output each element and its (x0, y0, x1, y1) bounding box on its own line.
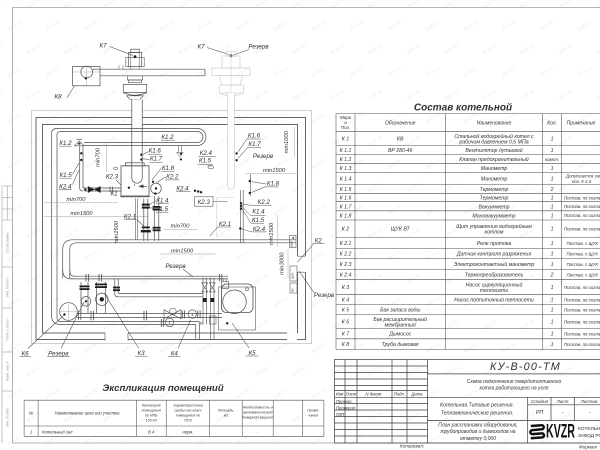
svg-text:kvzr.ru: kvzr.ru (178, 0, 194, 10)
svg-text:kvzr.ru: kvzr.ru (45, 111, 61, 124)
svg-text:min1500: min1500 (269, 222, 275, 245)
svg-text:kvzr.ru: kvzr.ru (349, 341, 365, 354)
svg-text:kvzr.ru: kvzr.ru (140, 0, 156, 10)
svg-text:kvzr.ru: kvzr.ru (273, 19, 289, 32)
svg-text:Постав. по согла: Постав. по согла (564, 195, 600, 200)
svg-text:1: 1 (551, 148, 554, 154)
svg-text:kvzr.ru: kvzr.ru (178, 42, 194, 55)
svg-text:kvzr.ru: kvzr.ru (235, 111, 251, 124)
svg-text:Клапан предохранительный: Клапан предохранительный (459, 156, 529, 163)
svg-text:kvzr.ru: kvzr.ru (558, 0, 574, 10)
svg-text:min1000: min1000 (284, 130, 290, 153)
svg-text:К7: К7 (197, 44, 205, 51)
svg-text:kvzr.ru: kvzr.ru (26, 134, 42, 147)
svg-text:Изм: Изм (336, 392, 344, 397)
svg-text:kvzr.ru: kvzr.ru (273, 295, 289, 308)
svg-text:kvzr.ru: kvzr.ru (26, 180, 42, 193)
svg-text:kvzr.ru: kvzr.ru (64, 42, 80, 55)
svg-text:1: 1 (551, 196, 554, 202)
svg-text:К 3: К 3 (342, 285, 349, 291)
svg-text:Постав. с ЩУК: Постав. с ЩУК (567, 241, 599, 246)
svg-text:К 7: К 7 (342, 332, 350, 338)
svg-text:kvzr.ru: kvzr.ru (254, 88, 270, 101)
svg-text:по НПБ: по НПБ (145, 414, 158, 418)
svg-text:kvzr.ru: kvzr.ru (425, 157, 441, 170)
svg-text:kvzr.ru: kvzr.ru (83, 249, 99, 262)
svg-text:kvzr.ru: kvzr.ru (406, 0, 422, 10)
svg-text:РП: РП (536, 410, 543, 416)
svg-text:min1500: min1500 (263, 168, 286, 174)
svg-text:К 2.2: К 2.2 (340, 252, 352, 258)
svg-text:kvzr.ru: kvzr.ru (425, 341, 441, 354)
svg-text:Дымосос: Дымосос (388, 332, 411, 338)
svg-text:kvzr.ru: kvzr.ru (596, 0, 600, 10)
svg-text:1: 1 (551, 332, 554, 338)
svg-text:KVZR: KVZR (546, 422, 575, 443)
svg-text:kvzr.ru: kvzr.ru (311, 433, 327, 446)
svg-text:ЩУК: ЩУК (291, 273, 295, 280)
svg-text:Наименование: Наименование (477, 121, 512, 127)
svg-text:К1: К1 (110, 191, 117, 198)
svg-text:kvzr.ru: kvzr.ru (121, 433, 137, 446)
svg-text:kvzr.ru: kvzr.ru (406, 410, 422, 423)
svg-text:К 1.6: К 1.6 (340, 196, 352, 202)
svg-text:-: - (562, 410, 564, 416)
svg-text:Резерв: Резерв (253, 153, 274, 160)
svg-text:kvzr.ru: kvzr.ru (349, 19, 365, 32)
svg-text:теплосети: теплосети (480, 288, 509, 294)
svg-text:kvzr.ru: kvzr.ru (7, 111, 23, 124)
svg-text:kvzr.ru: kvzr.ru (45, 433, 61, 446)
svg-text:м2: м2 (224, 414, 228, 418)
svg-text:kvzr.ru: kvzr.ru (216, 42, 232, 55)
svg-text:kvzr.ru: kvzr.ru (26, 226, 42, 239)
svg-text:Резерв: Резерв (314, 292, 335, 299)
svg-text:Постав. по согла: Постав. по согла (564, 307, 600, 312)
svg-text:kvzr.ru: kvzr.ru (444, 42, 460, 55)
svg-text:kvzr.ru: kvzr.ru (292, 42, 308, 55)
svg-text:Схема подключения твердотоплив: Схема подключения твердотопливного (467, 379, 562, 385)
svg-text:kvzr.ru: kvzr.ru (558, 88, 574, 101)
svg-text:Постав. с ЩУК: Постав. с ЩУК (567, 251, 599, 256)
svg-text:kvzr.ru: kvzr.ru (406, 364, 422, 377)
svg-text:Термопреобразователь: Термопреобразователь (465, 273, 524, 279)
svg-text:1: 1 (551, 241, 554, 247)
svg-text:Постав. по согла: Постав. по согла (564, 285, 600, 290)
svg-text:kvzr.ru: kvzr.ru (387, 249, 403, 262)
svg-text:К 1.5: К 1.5 (340, 187, 352, 193)
svg-text:N докум.: N докум. (366, 392, 383, 397)
svg-text:kvzr.ru: kvzr.ru (83, 111, 99, 124)
svg-text:Категория: Категория (142, 404, 161, 408)
svg-text:1: 1 (551, 262, 554, 268)
svg-text:kvzr.ru: kvzr.ru (368, 410, 384, 423)
svg-text:К 1.2: К 1.2 (340, 157, 352, 163)
svg-text:kvzr.ru: kvzr.ru (368, 42, 384, 55)
svg-text:kvzr.ru: kvzr.ru (387, 19, 403, 32)
svg-text:К 1.4: К 1.4 (340, 176, 352, 182)
svg-text:Датчик контроля разряжения: Датчик контроля разряжения (456, 252, 531, 258)
svg-text:К1.6: К1.6 (248, 132, 261, 139)
svg-text:1: 1 (191, 312, 194, 317)
svg-text:kvzr.ru: kvzr.ru (311, 157, 327, 170)
svg-text:kvzr.ru: kvzr.ru (102, 318, 118, 331)
svg-text:ЩУК ВТ: ЩУК ВТ (391, 227, 411, 233)
svg-text:min700: min700 (66, 197, 86, 203)
svg-text:автоматической: автоматической (243, 411, 273, 415)
svg-text:Вакуумметр: Вакуумметр (478, 204, 509, 210)
svg-text:Термометр: Термометр (480, 196, 509, 202)
svg-text:помещения: помещения (141, 409, 160, 413)
svg-text:К 1.1: К 1.1 (340, 148, 352, 154)
svg-text:kvzr.ru: kvzr.ru (235, 295, 251, 308)
svg-text:kvzr.ru: kvzr.ru (0, 134, 4, 147)
svg-text:kvzr.ru: kvzr.ru (577, 19, 593, 32)
svg-text:К4: К4 (171, 350, 179, 357)
svg-text:kvzr.ru: kvzr.ru (463, 65, 479, 78)
svg-text:kvzr.ru: kvzr.ru (596, 42, 600, 55)
svg-text:kvzr.ru: kvzr.ru (7, 387, 23, 400)
svg-text:КУ-В-00-ТМ: КУ-В-00-ТМ (490, 361, 561, 373)
svg-text:Состав котельной: Состав котельной (414, 103, 512, 114)
svg-text:kvzr.ru: kvzr.ru (102, 0, 118, 10)
svg-text:Необходимость в: Необходимость в (243, 406, 273, 410)
svg-text:Лист: Лист (556, 399, 569, 404)
svg-text:kvzr.ru: kvzr.ru (444, 0, 460, 10)
svg-text:kvzr.ru: kvzr.ru (7, 65, 23, 78)
svg-text:kvzr.ru: kvzr.ru (330, 0, 346, 10)
svg-text:К2.3: К2.3 (198, 199, 211, 206)
svg-text:kvzr.ru: kvzr.ru (26, 42, 42, 55)
svg-text:Резерв: Резерв (248, 44, 269, 51)
svg-text:К1.7: К1.7 (150, 155, 163, 162)
svg-text:Постав. с ЩУК: Постав. с ЩУК (567, 272, 599, 277)
svg-text:1: 1 (551, 166, 554, 172)
svg-text:К 1: К 1 (342, 137, 349, 143)
svg-text:kvzr.ru: kvzr.ru (64, 226, 80, 239)
svg-text:kvzr.ru: kvzr.ru (444, 180, 460, 193)
svg-text:kvzr.ru: kvzr.ru (7, 19, 23, 32)
svg-text:Инв. N подл.: Инв. N подл. (6, 277, 10, 297)
svg-text:kvzr.ru: kvzr.ru (520, 180, 536, 193)
svg-text:kvzr.ru: kvzr.ru (0, 88, 4, 101)
svg-text:kvzr.ru: kvzr.ru (425, 203, 441, 216)
svg-text:Проект.: Проект. (336, 399, 353, 404)
svg-text:kvzr.ru: kvzr.ru (444, 318, 460, 331)
svg-text:kvzr.ru: kvzr.ru (64, 318, 80, 331)
svg-text:kvzr.ru: kvzr.ru (216, 226, 232, 239)
svg-text:kvzr.ru: kvzr.ru (482, 88, 498, 101)
svg-text:kvzr.ru: kvzr.ru (520, 0, 536, 10)
svg-text:kvzr.ru: kvzr.ru (197, 249, 213, 262)
svg-text:kvzr.ru: kvzr.ru (273, 65, 289, 78)
svg-text:КОТЕЛЬНЫЙ: КОТЕЛЬНЫЙ (578, 424, 600, 432)
svg-text:kvzr.ru: kvzr.ru (45, 295, 61, 308)
svg-text:kvzr.ru: kvzr.ru (273, 433, 289, 446)
svg-text:1: 1 (551, 308, 554, 314)
svg-text:Кол.: Кол. (547, 121, 557, 127)
svg-text:Взам. инв. N: Взам. инв. N (6, 361, 10, 381)
svg-text:kvzr.ru: kvzr.ru (159, 111, 175, 124)
svg-text:kvzr.ru: kvzr.ru (102, 364, 118, 377)
svg-text:1: 1 (551, 227, 554, 233)
svg-text:kvzr.ru: kvzr.ru (178, 318, 194, 331)
svg-text:К 1.3: К 1.3 (340, 166, 352, 172)
svg-text:Подп.: Подп. (394, 392, 405, 397)
svg-text:kvzr.ru: kvzr.ru (292, 410, 308, 423)
svg-text:kvzr.ru: kvzr.ru (0, 0, 4, 10)
svg-text:а: а (344, 120, 347, 125)
svg-text:К6: К6 (21, 350, 29, 357)
svg-text:kvzr.ru: kvzr.ru (216, 318, 232, 331)
svg-text:1: 1 (551, 285, 554, 291)
svg-text:среды или класс: среды или класс (174, 409, 202, 413)
svg-text:kvzr.ru: kvzr.ru (140, 318, 156, 331)
svg-text:Мановакуумметр: Мановакуумметр (472, 213, 515, 219)
svg-text:К1.5: К1.5 (199, 158, 212, 165)
svg-text:Согласовано: Согласовано (6, 233, 10, 254)
svg-text:1: 1 (551, 204, 554, 210)
svg-text:Формат: Формат (579, 444, 597, 449)
svg-text:kvzr.ru: kvzr.ru (216, 364, 232, 377)
svg-text:kvzr.ru: kvzr.ru (406, 42, 422, 55)
svg-text:kvzr.ru: kvzr.ru (254, 0, 270, 10)
svg-text:kvzr.ru: kvzr.ru (501, 433, 517, 446)
svg-text:kvzr.ru: kvzr.ru (406, 272, 422, 285)
svg-text:Характеристика: Характеристика (172, 404, 203, 408)
svg-text:kvzr.ru: kvzr.ru (64, 364, 80, 377)
svg-text:Допускается зам: Допускается зам (565, 174, 600, 179)
svg-text:min700: min700 (96, 147, 102, 167)
svg-text:kvzr.ru: kvzr.ru (368, 88, 384, 101)
svg-text:min1500: min1500 (70, 211, 93, 217)
svg-text:kvzr.ru: kvzr.ru (121, 249, 137, 262)
svg-text:К 2.4: К 2.4 (340, 273, 352, 279)
svg-text:К2.2: К2.2 (258, 199, 271, 206)
svg-text:kvzr.ru: kvzr.ru (45, 19, 61, 32)
svg-text:kvzr.ru: kvzr.ru (45, 157, 61, 170)
svg-text:1: 1 (551, 320, 554, 326)
svg-text:Постав. с ЩУК: Постав. с ЩУК (567, 262, 599, 267)
svg-text:В 4: В 4 (148, 430, 155, 435)
svg-text:Экспликация помещений: Экспликация помещений (102, 383, 223, 394)
svg-text:kvzr.ru: kvzr.ru (159, 433, 175, 446)
svg-text:Котельный зал: Котельный зал (42, 430, 73, 435)
svg-text:ВР 280-46: ВР 280-46 (388, 148, 413, 154)
svg-text:Манометр: Манометр (481, 166, 508, 172)
svg-text:чание: чание (308, 414, 318, 418)
svg-text:kvzr.ru: kvzr.ru (273, 111, 289, 124)
svg-text:kvzr.ru: kvzr.ru (425, 295, 441, 308)
svg-text:kvzr.ru: kvzr.ru (311, 249, 327, 262)
svg-text:kvzr.ru: kvzr.ru (216, 0, 232, 10)
svg-text:kvzr.ru: kvzr.ru (64, 0, 80, 10)
svg-text:К1.6: К1.6 (149, 147, 162, 154)
svg-text:kvzr.ru: kvzr.ru (577, 157, 593, 170)
svg-text:1: 1 (551, 137, 554, 143)
svg-text:kvzr.ru: kvzr.ru (482, 0, 498, 10)
svg-text:Постав. по согла: Постав. по согла (564, 204, 600, 209)
svg-text:К 8: К 8 (342, 342, 349, 348)
svg-text:kvzr.ru: kvzr.ru (387, 65, 403, 78)
svg-text:Резерв: Резерв (48, 350, 69, 357)
svg-text:kvzr.ru: kvzr.ru (273, 387, 289, 400)
svg-text:kvzr.ru: kvzr.ru (387, 157, 403, 170)
svg-text:kvzr.ru: kvzr.ru (520, 88, 536, 101)
svg-text:-: - (589, 410, 591, 416)
svg-text:К 1.8: К 1.8 (340, 213, 352, 219)
svg-text:Постав. по согла: Постав. по согла (564, 213, 600, 218)
svg-text:Электроконтактный манометр: Электроконтактный манометр (454, 261, 535, 268)
svg-text:К 2: К 2 (342, 227, 349, 233)
svg-text:kvzr.ru: kvzr.ru (102, 88, 118, 101)
svg-text:1: 1 (551, 213, 554, 219)
svg-text:kvzr.ru: kvzr.ru (501, 65, 517, 78)
svg-text:2: 2 (550, 273, 554, 279)
svg-text:ЩУК: ЩУК (290, 241, 294, 248)
svg-text:kvzr.ru: kvzr.ru (596, 180, 600, 193)
svg-text:kvzr.ru: kvzr.ru (539, 65, 555, 78)
svg-text:1: 1 (551, 252, 554, 258)
svg-text:КВ: КВ (397, 137, 404, 143)
svg-text:ПУЭ: ПУЭ (184, 419, 192, 423)
svg-text:kvzr.ru: kvzr.ru (83, 433, 99, 446)
svg-text:Копировал:: Копировал: (400, 444, 425, 449)
svg-text:Реле протока: Реле протока (477, 241, 512, 247)
svg-text:kvzr.ru: kvzr.ru (7, 157, 23, 170)
svg-text:kvzr.ru: kvzr.ru (330, 364, 346, 377)
svg-text:kvzr.ru: kvzr.ru (406, 88, 422, 101)
svg-text:kvzr.ru: kvzr.ru (26, 272, 42, 285)
svg-text:kvzr.ru: kvzr.ru (425, 249, 441, 262)
svg-text:kvzr.ru: kvzr.ru (501, 19, 517, 32)
svg-text:К7: К7 (99, 43, 107, 50)
svg-text:Лист: Лист (345, 392, 357, 397)
svg-text:К8: К8 (54, 94, 62, 101)
svg-text:котлом: котлом (485, 230, 504, 236)
svg-text:kvzr.ru: kvzr.ru (596, 410, 600, 423)
svg-text:min1500: min1500 (171, 248, 194, 254)
svg-text:kvzr.ru: kvzr.ru (368, 364, 384, 377)
svg-text:рабочим давлением 0,6 МПа: рабочим давлением 0,6 МПа (458, 139, 528, 145)
svg-text:min700: min700 (170, 224, 190, 230)
svg-text:kvzr.ru: kvzr.ru (178, 88, 194, 101)
svg-text:kvzr.ru: kvzr.ru (444, 364, 460, 377)
svg-text:kvzr.ru: kvzr.ru (292, 364, 308, 377)
svg-text:kvzr.ru: kvzr.ru (311, 111, 327, 124)
svg-text:kvzr.ru: kvzr.ru (26, 88, 42, 101)
svg-text:kvzr.ru: kvzr.ru (235, 387, 251, 400)
svg-text:поз. К 2.3: поз. К 2.3 (572, 179, 592, 184)
svg-text:№: № (29, 411, 34, 416)
svg-text:Поз.: Поз. (341, 125, 350, 130)
svg-text:kvzr.ru: kvzr.ru (596, 364, 600, 377)
svg-text:kvzr.ru: kvzr.ru (45, 387, 61, 400)
svg-text:kvzr.ru: kvzr.ru (292, 0, 308, 10)
svg-text:Примечание: Примечание (567, 121, 596, 127)
svg-text:kvzr.ru: kvzr.ru (406, 180, 422, 193)
svg-text:kvzr.ru: kvzr.ru (121, 295, 137, 308)
svg-text:мембранный: мембранный (385, 321, 416, 328)
svg-text:kvzr.ru: kvzr.ru (311, 19, 327, 32)
svg-text:kvzr.ru: kvzr.ru (292, 88, 308, 101)
svg-text:Проверил: Проверил (336, 405, 356, 410)
svg-text:Листов: Листов (580, 399, 598, 404)
svg-text:kvzr.ru: kvzr.ru (7, 203, 23, 216)
svg-text:отметку 0,000: отметку 0,000 (460, 436, 496, 442)
svg-text:kvzr.ru: kvzr.ru (45, 203, 61, 216)
svg-text:К 2.3: К 2.3 (340, 262, 352, 268)
svg-text:kvzr.ru: kvzr.ru (45, 65, 61, 78)
svg-text:kvzr.ru: kvzr.ru (178, 364, 194, 377)
svg-text:Обозначение: Обозначение (385, 121, 416, 127)
svg-text:Постав. по согла: Постав. по согла (564, 319, 600, 324)
svg-text:kvzr.ru: kvzr.ru (482, 42, 498, 55)
svg-text:К 4: К 4 (342, 297, 349, 303)
svg-text:Вентилятор дутьевой: Вентилятор дутьевой (465, 147, 522, 154)
svg-text:Термометр: Термометр (480, 187, 509, 193)
svg-text:kvzr.ru: kvzr.ru (83, 387, 99, 400)
svg-text:норм.: норм. (183, 430, 194, 435)
svg-text:kvzr.ru: kvzr.ru (159, 19, 175, 32)
svg-text:1: 1 (30, 430, 32, 435)
svg-text:kvzr.ru: kvzr.ru (26, 318, 42, 331)
svg-text:К 2.1: К 2.1 (340, 241, 352, 247)
svg-text:kvzr.ru: kvzr.ru (254, 272, 270, 285)
svg-text:kvzr.ru: kvzr.ru (311, 387, 327, 400)
svg-text:kvzr.ru: kvzr.ru (577, 65, 593, 78)
svg-text:Труба дымовая: Труба дымовая (382, 342, 419, 348)
svg-text:kvzr.ru: kvzr.ru (140, 42, 156, 55)
svg-text:kvzr.ru: kvzr.ru (463, 19, 479, 32)
svg-text:ГИП: ГИП (336, 412, 345, 417)
svg-text:котла работающего на угле: котла работающего на угле (479, 386, 548, 392)
svg-text:План расстановки оборудования,: План расстановки оборудования, (438, 423, 517, 429)
svg-text:kvzr.ru: kvzr.ru (425, 19, 441, 32)
svg-text:kvzr.ru: kvzr.ru (349, 295, 365, 308)
svg-text:kvzr.ru: kvzr.ru (273, 203, 289, 216)
svg-text:kvzr.ru: kvzr.ru (501, 341, 517, 354)
svg-text:К3: К3 (137, 350, 145, 357)
svg-text:Постав. по согла: Постав. по согла (564, 297, 600, 302)
svg-text:kvzr.ru: kvzr.ru (425, 65, 441, 78)
svg-text:kvzr.ru: kvzr.ru (197, 433, 213, 446)
svg-text:kvzr.ru: kvzr.ru (463, 387, 479, 400)
svg-text:Стадия: Стадия (531, 399, 549, 404)
svg-text:Наименование цеха или участка: Наименование цеха или участка (55, 411, 120, 416)
svg-text:Котельная.Типовые решения.: Котельная.Типовые решения. (440, 402, 514, 408)
svg-text:kvzr.ru: kvzr.ru (349, 65, 365, 78)
svg-text:К1.7: К1.7 (248, 141, 261, 148)
svg-text:kvzr.ru: kvzr.ru (140, 364, 156, 377)
svg-text:-: - (257, 430, 259, 435)
svg-text:К5: К5 (248, 350, 256, 357)
svg-text:kvzr.ru: kvzr.ru (0, 42, 4, 55)
svg-text:kvzr.ru: kvzr.ru (7, 341, 23, 354)
svg-text:К 6: К 6 (342, 320, 349, 326)
svg-text:kvzr.ru: kvzr.ru (7, 433, 23, 446)
svg-text:kvzr.ru: kvzr.ru (121, 19, 137, 32)
svg-text:kvzr.ru: kvzr.ru (520, 42, 536, 55)
svg-text:kvzr.ru: kvzr.ru (159, 65, 175, 78)
svg-text:kvzr.ru: kvzr.ru (311, 341, 327, 354)
svg-text:kvzr.ru: kvzr.ru (45, 249, 61, 262)
svg-text:Постав. по согла: Постав. по согла (564, 332, 600, 337)
svg-text:1: 1 (551, 297, 554, 303)
svg-text:К2.3: К2.3 (106, 174, 119, 181)
svg-text:К1.4: К1.4 (252, 209, 265, 216)
svg-text:Инв. N дубл.: Инв. N дубл. (6, 407, 10, 427)
